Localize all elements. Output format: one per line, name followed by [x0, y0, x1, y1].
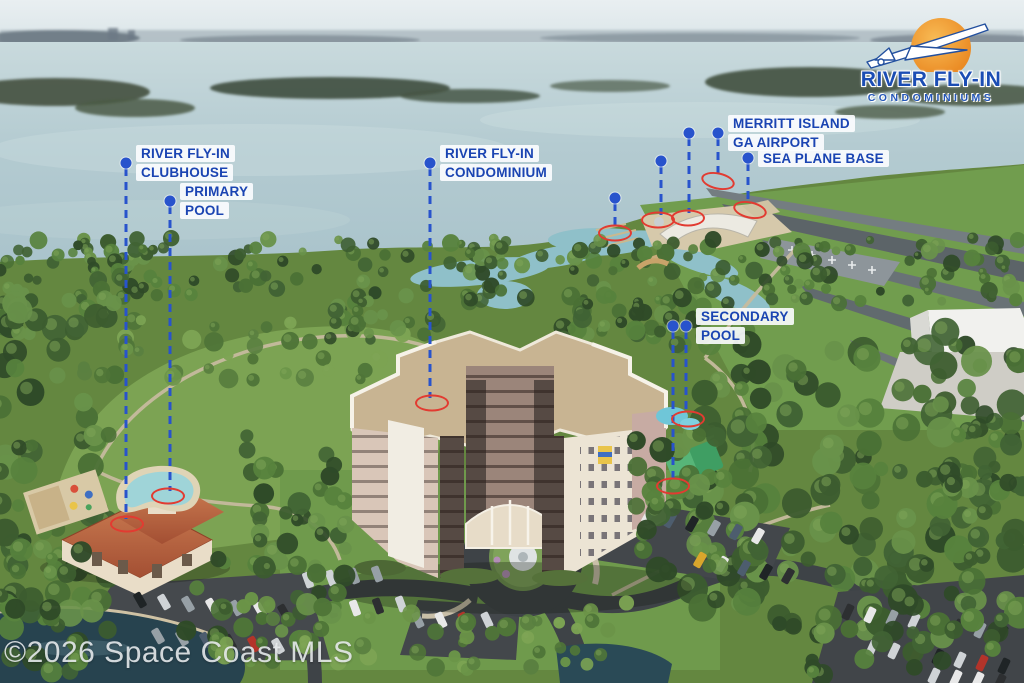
leader-line: [169, 206, 172, 491]
callout-dot: [743, 153, 754, 164]
callout-dot: [656, 156, 667, 167]
callout-label-line: POOL: [696, 327, 745, 344]
callout-label: SECONDARYPOOL: [696, 308, 794, 344]
leader-line: [685, 331, 688, 414]
target-ring: [641, 212, 675, 229]
callout-label-line: POOL: [180, 202, 229, 219]
callout-label-line: RIVER FLY-IN: [136, 145, 235, 162]
callout-label: RIVER FLY-INCLUBHOUSE: [136, 145, 235, 181]
callout-dot: [165, 196, 176, 207]
plane-sun-icon: [845, 12, 1017, 72]
callout-dot: [668, 321, 679, 332]
callout-label: MERRITT ISLANDGA AIRPORT: [728, 115, 855, 151]
callout-label: RIVER FLY-INCONDOMINIUM: [440, 145, 552, 181]
callout-label: SEA PLANE BASE: [758, 150, 889, 167]
callout-label-line: MERRITT ISLAND: [728, 115, 855, 132]
callout-label: PRIMARYPOOL: [180, 183, 253, 219]
callout-label-line: SEA PLANE BASE: [758, 150, 889, 167]
callout-dot: [425, 158, 436, 169]
target-ring: [598, 225, 632, 242]
callout-dot: [681, 321, 692, 332]
target-ring: [151, 488, 185, 505]
callout-dot: [713, 128, 724, 139]
callout-label-line: GA AIRPORT: [728, 134, 824, 151]
callout-dot: [121, 158, 132, 169]
target-ring: [110, 516, 144, 533]
callout-dot: [684, 128, 695, 139]
copyright-watermark: ©2026 Space Coast MLS: [4, 636, 353, 670]
logo-subtitle: CONDOMINIUMS: [845, 92, 1017, 104]
river-fly-in-logo: RIVER FLY-IN CONDOMINIUMS: [845, 12, 1017, 108]
leader-line: [717, 138, 720, 176]
callout-label-line: PRIMARY: [180, 183, 253, 200]
callout-label-line: CONDOMINIUM: [440, 164, 552, 181]
leader-line: [747, 163, 750, 205]
target-ring: [415, 395, 449, 412]
target-ring: [671, 210, 705, 227]
leader-line: [672, 331, 675, 481]
callout-label-line: CLUBHOUSE: [136, 164, 233, 181]
leader-line: [688, 138, 691, 213]
leader-line: [660, 166, 663, 215]
callout-label-line: RIVER FLY-IN: [440, 145, 539, 162]
leader-line: [125, 168, 128, 519]
logo-title: RIVER FLY-IN: [845, 68, 1017, 92]
aerial-rendering: RIVER FLY-INCLUBHOUSEPRIMARYPOOLRIVER FL…: [0, 0, 1024, 683]
callout-dot: [610, 193, 621, 204]
callout-label-line: SECONDARY: [696, 308, 794, 325]
target-ring: [656, 478, 690, 495]
target-ring: [671, 411, 705, 428]
leader-line: [429, 168, 432, 398]
